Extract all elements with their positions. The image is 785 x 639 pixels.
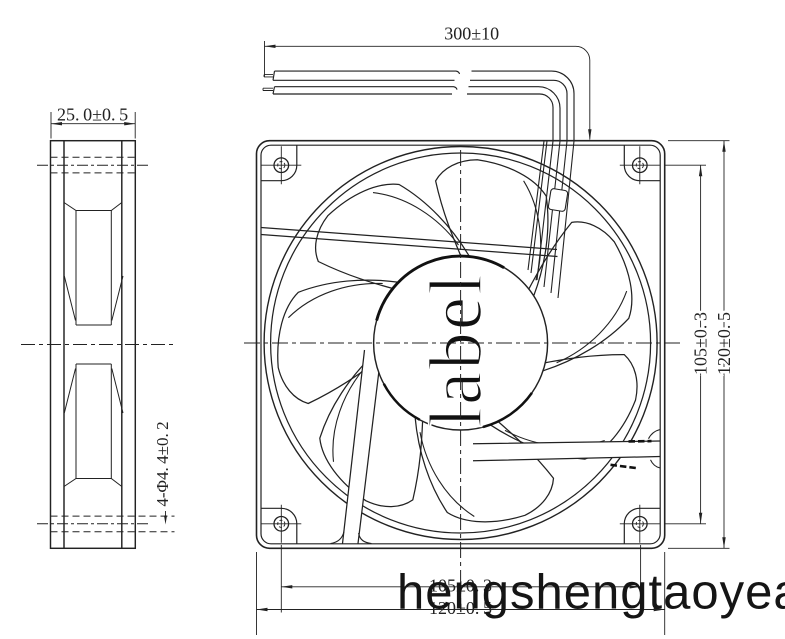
svg-text:300±10: 300±10: [444, 23, 499, 43]
svg-text:120±0. 5: 120±0. 5: [714, 312, 734, 375]
svg-text:hengshengtaoyea: hengshengtaoyea: [397, 566, 785, 620]
svg-text:105±0. 3: 105±0. 3: [691, 312, 711, 375]
svg-text:25. 0±0. 5: 25. 0±0. 5: [57, 105, 128, 125]
svg-text:4-Φ4. 4±0. 2: 4-Φ4. 4±0. 2: [153, 421, 172, 506]
svg-text:label: label: [415, 272, 498, 428]
